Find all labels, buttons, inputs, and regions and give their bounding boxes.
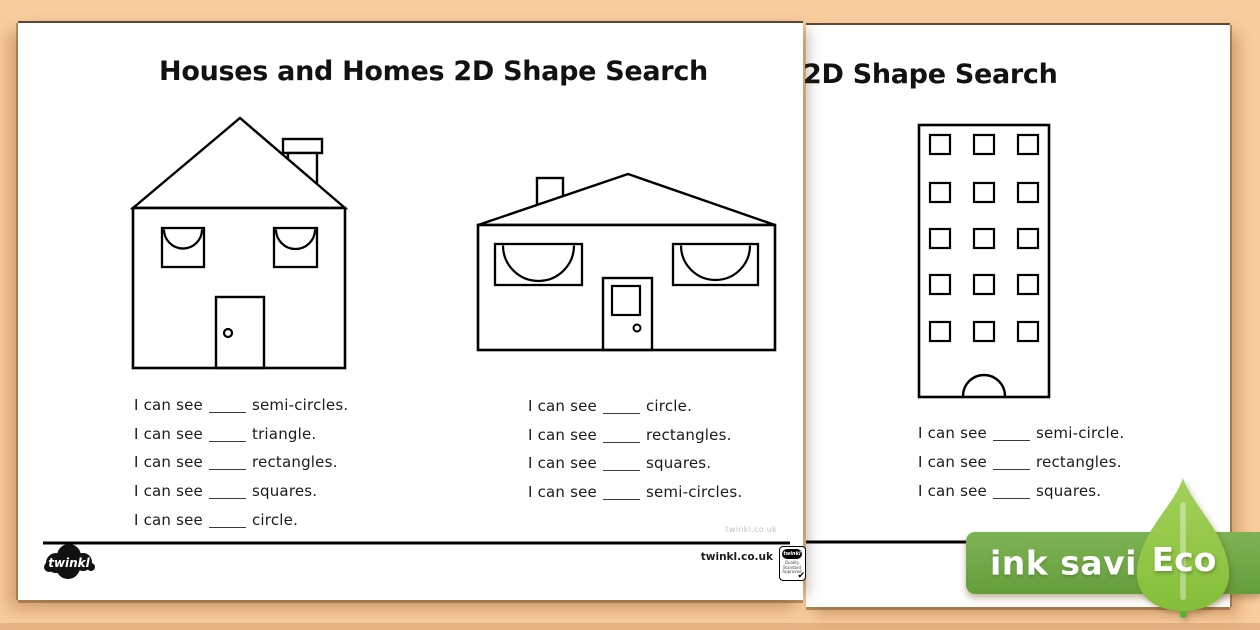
answer-blank	[603, 430, 640, 443]
question-row: I can see semi-circle.	[918, 423, 1124, 443]
question-shape: squares.	[646, 453, 711, 473]
question-row: I can see triangle.	[134, 424, 316, 444]
question-row: I can see rectangles.	[134, 452, 338, 472]
worksheet-preview: 2D Shape Search I can see semi-circle. I…	[0, 0, 1260, 630]
question-shape: squares.	[1036, 481, 1101, 501]
question-row: I can see squares.	[528, 453, 711, 473]
question-shape: rectangles.	[646, 425, 732, 445]
question-row: I can see semi-circles.	[528, 482, 742, 502]
question-shape: squares.	[252, 481, 317, 501]
answer-blank	[209, 515, 246, 528]
answer-blank	[993, 486, 1030, 499]
question-shape: circle.	[646, 396, 692, 416]
question-prefix: I can see	[134, 510, 203, 530]
question-prefix: I can see	[918, 452, 987, 472]
question-row: I can see squares.	[918, 481, 1101, 501]
question-prefix: I can see	[134, 395, 203, 415]
website-url: twinkl.co.uk	[701, 551, 773, 563]
question-prefix: I can see	[528, 425, 597, 445]
question-shape: semi-circles.	[646, 482, 742, 502]
question-shape: rectangles.	[252, 452, 338, 472]
twinkl-logo-text: twinkl	[48, 556, 90, 570]
question-row: I can see circle.	[528, 396, 692, 416]
answer-blank	[603, 401, 640, 414]
question-shape: circle.	[252, 510, 298, 530]
question-prefix: I can see	[918, 423, 987, 443]
question-prefix: I can see	[528, 453, 597, 473]
question-row: I can see rectangles.	[918, 452, 1122, 472]
eco-label: Eco	[1146, 540, 1222, 579]
question-row: I can see rectangles.	[528, 425, 732, 445]
question-prefix: I can see	[528, 482, 597, 502]
tower-block-body	[919, 125, 1049, 397]
question-shape: semi-circles.	[252, 395, 348, 415]
chimney-cap	[283, 139, 322, 153]
detached-house	[133, 118, 345, 368]
question-prefix: I can see	[134, 452, 203, 472]
twinkl-logo: twinkl	[43, 543, 97, 581]
answer-blank	[603, 487, 640, 500]
watermark-text: twinkl.co.uk	[726, 525, 777, 534]
roof-triangle	[478, 174, 775, 225]
question-prefix: I can see	[134, 481, 203, 501]
badge-checkmark-icon: ✔	[797, 571, 805, 581]
question-prefix: I can see	[134, 424, 203, 444]
question-shape: rectangles.	[1036, 452, 1122, 472]
question-shape: semi-circle.	[1036, 423, 1124, 443]
quality-standard-badge: twinkl Quality Standard Approved ✔	[779, 546, 806, 581]
question-prefix: I can see	[918, 481, 987, 501]
question-shape: triangle.	[252, 424, 316, 444]
worksheet-page-front: Houses and Homes 2D Shape Search	[18, 23, 803, 600]
question-row: I can see semi-circles.	[134, 395, 348, 415]
question-row: I can see squares.	[134, 481, 317, 501]
answer-blank	[209, 400, 246, 413]
answer-blank	[993, 457, 1030, 470]
badge-twinkl-logo: twinkl	[782, 549, 802, 559]
answer-blank	[603, 458, 640, 471]
answer-blank	[209, 457, 246, 470]
bungalow	[478, 174, 775, 350]
question-row: I can see circle.	[134, 510, 298, 530]
question-prefix: I can see	[528, 396, 597, 416]
card-bottom-edge	[0, 623, 1260, 630]
answer-blank	[209, 486, 246, 499]
answer-blank	[993, 428, 1030, 441]
answer-blank	[209, 429, 246, 442]
